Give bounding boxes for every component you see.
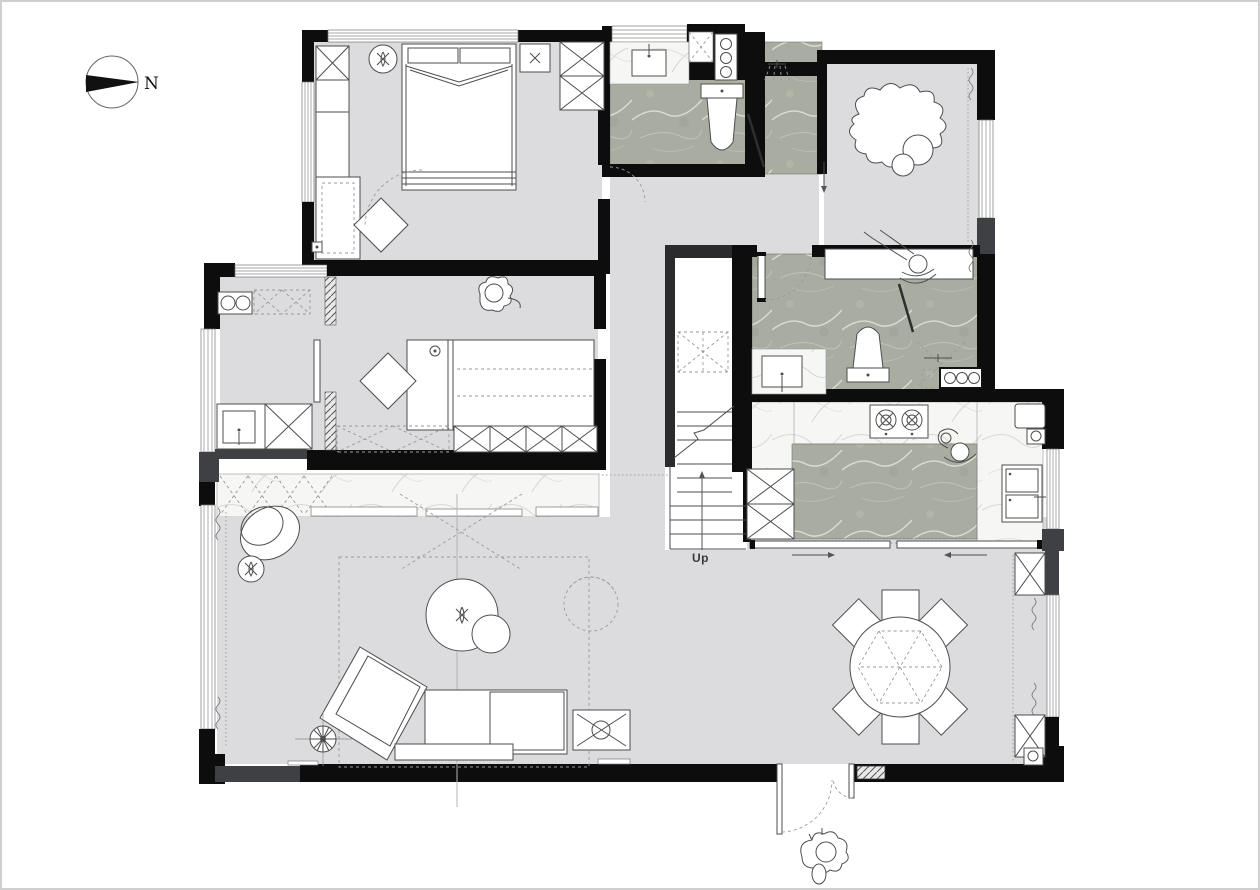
desk: [825, 249, 973, 279]
knob-cabinet: [940, 368, 982, 388]
north-arrow: [86, 75, 139, 92]
door-leaf: [777, 764, 782, 834]
floor-plan-drawing: N: [2, 2, 1260, 890]
cooktop-2-burner: [870, 405, 928, 438]
cabinet-column: [747, 469, 794, 539]
washer-column: [715, 34, 737, 80]
bedroom2-door-leaf: [314, 340, 320, 402]
kitchen-island: [792, 444, 977, 539]
refrigerator: [1002, 465, 1046, 522]
up-label: Up: [692, 551, 709, 565]
double-bed: [402, 44, 516, 190]
floor-plan-page: N: [0, 0, 1260, 890]
wall-hatch-section: [857, 766, 885, 779]
entry: [777, 764, 854, 884]
cushion: [892, 154, 914, 176]
door-leaf: [849, 764, 854, 798]
corridor-floor-vertical: [610, 174, 665, 517]
north-label: N: [144, 74, 159, 94]
door-swing-arc: [782, 780, 832, 832]
dog: [801, 828, 849, 884]
bed: [407, 340, 594, 430]
door-leaf: [758, 254, 765, 300]
bookshelf: [316, 112, 349, 177]
side-table: [573, 710, 630, 750]
wardrobe: [454, 426, 597, 452]
compass-icon: N: [86, 56, 159, 108]
desk: [316, 177, 360, 259]
